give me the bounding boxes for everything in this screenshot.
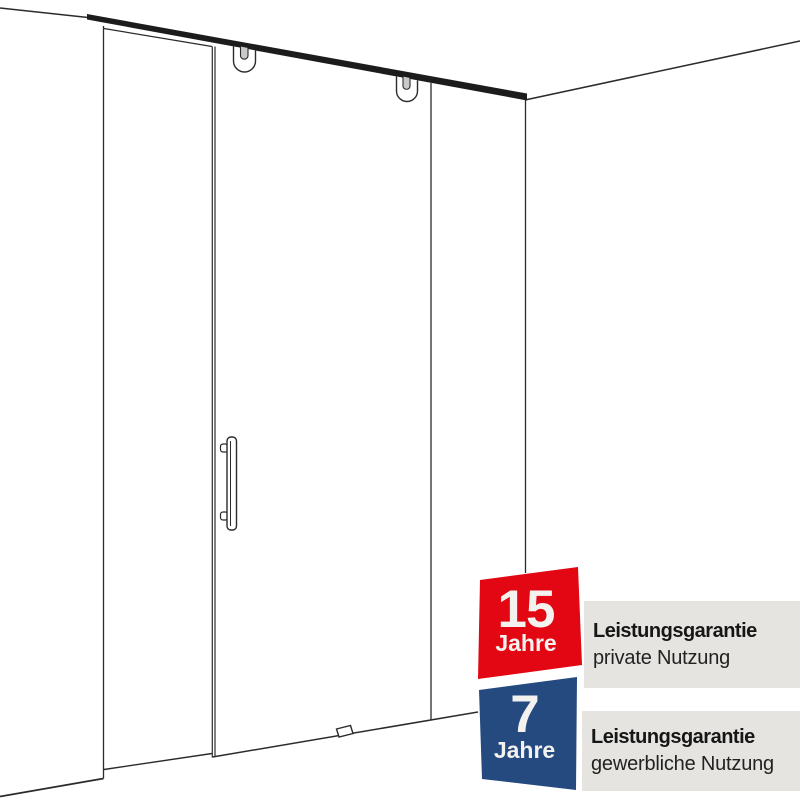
warranty-subtitle: private Nutzung (593, 645, 800, 672)
side-panel (104, 754, 212, 770)
left-wall-top-edge (0, 8, 88, 18)
floor-guide-block (337, 726, 354, 738)
warranty-title: Leistungsgarantie (591, 724, 800, 751)
badge-years-unit: Jahre (478, 737, 571, 763)
roller-pin (241, 47, 249, 60)
warranty-badge-private: 15 Jahre (477, 566, 583, 680)
back-wall (525, 41, 800, 573)
side-panel-bottom-edge (104, 754, 212, 770)
left-wall (0, 8, 104, 797)
badge-years-unit: Jahre (477, 630, 575, 656)
warranty-badge-commercial: 7 Jahre (478, 676, 579, 792)
door-handle-bar (221, 437, 237, 530)
warranty-title: Leistungsgarantie (593, 618, 800, 645)
rail-bar (87, 14, 527, 101)
roller-pin (403, 77, 410, 90)
product-illustration: 15 Jahre Leistungsgarantie private Nutzu… (0, 0, 800, 800)
warranty-info-commercial: Leistungsgarantie gewerbliche Nutzung (582, 711, 800, 791)
warranty-info-private: Leistungsgarantie private Nutzung (584, 601, 800, 688)
left-wall-floor-edge (0, 779, 104, 797)
badge-years-value: 7 (478, 688, 571, 741)
top-rail (87, 14, 527, 101)
badge-years-value: 15 (477, 583, 575, 636)
warranty-subtitle: gewerbliche Nutzung (591, 751, 800, 778)
sliding-glass-door (212, 47, 478, 758)
handle-bar (227, 437, 237, 530)
right-wall-top-edge (525, 41, 800, 100)
roller-hanger-right (397, 77, 418, 102)
floor-guide (337, 726, 354, 738)
roller-hanger-left (234, 47, 256, 73)
